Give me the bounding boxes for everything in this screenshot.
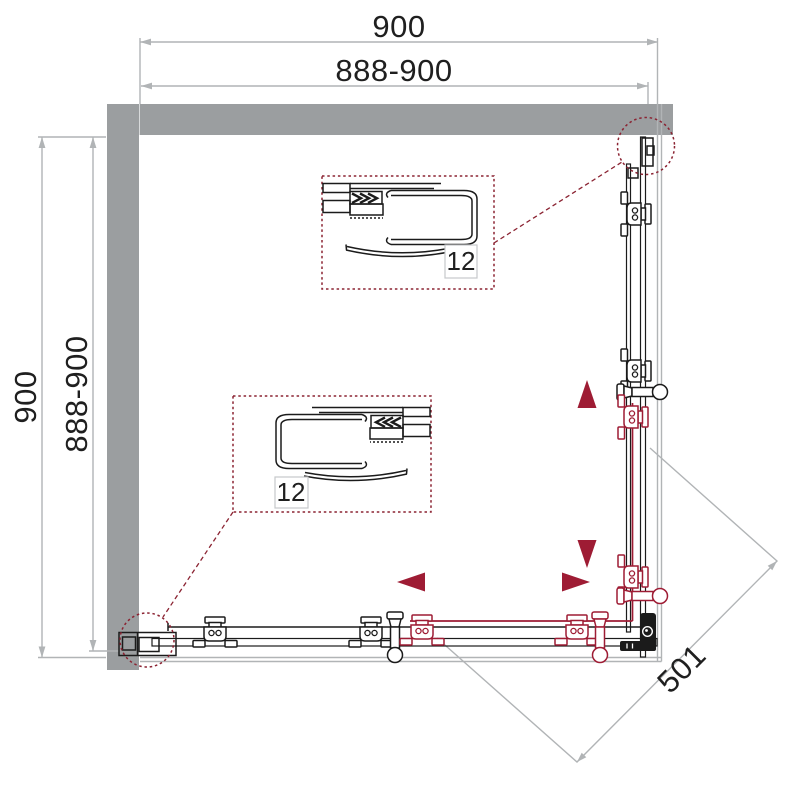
left-wall [107,104,139,670]
detail-label-lower: 12 [277,477,306,507]
dim-diagonal-entry: 501 [437,448,777,762]
dim-diagonal-value: 501 [650,637,712,699]
dim-top-inner: 888-900 [141,53,648,104]
dim-top-outer-value: 900 [372,9,425,44]
door-knob [387,612,403,663]
profile-section-lower [276,408,430,481]
roller [621,192,651,236]
detail-callout-lower: 12 [163,396,431,617]
roller [349,617,393,647]
door-knob-alt [592,612,608,663]
slide-arrow-horizontal [397,573,590,592]
right-door-track [617,137,668,657]
top-wall [107,104,673,135]
bottom-door-track [119,612,657,663]
shower-enclosure-technical-drawing: 900 888-900 900 888-900 501 12 [0,0,800,786]
dim-top-inner-value: 888-900 [335,53,452,88]
corner-post-bracket [620,613,656,651]
drawing-canvas: 900 888-900 900 888-900 501 12 [0,0,800,786]
detail-callout-upper: 12 [322,162,622,289]
dim-left-outer-value: 900 [8,370,43,423]
roller-alt [400,615,444,645]
slide-arrow-vertical [578,380,597,568]
door-knob-alt [617,588,668,604]
dim-left-inner-value: 888-900 [59,335,94,452]
roller-alt [555,615,599,645]
detail-label-upper: 12 [447,246,476,276]
roller [193,617,237,647]
